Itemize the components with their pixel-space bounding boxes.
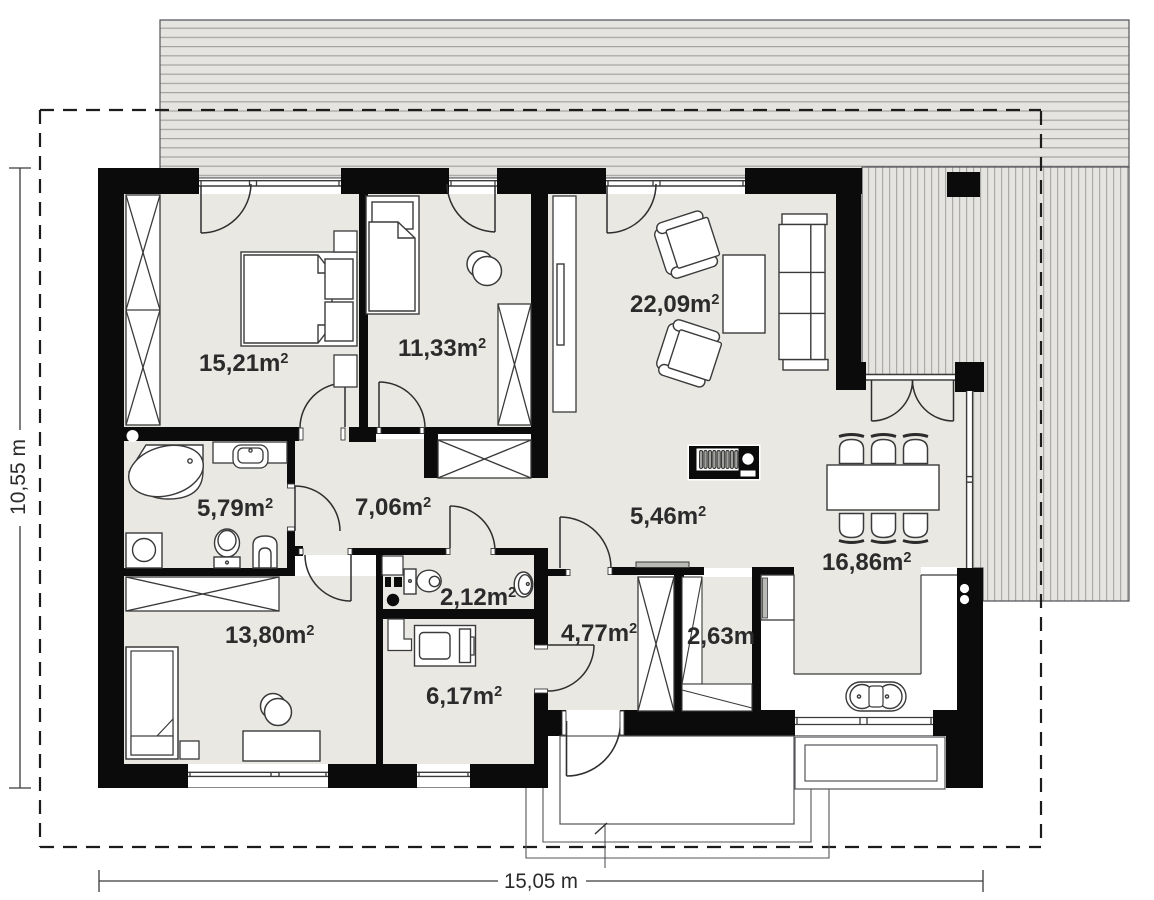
svg-text:2,63m: 2,63m	[687, 623, 755, 650]
svg-text:6,17m2: 6,17m2	[426, 683, 502, 710]
svg-text:4,77m2: 4,77m2	[561, 620, 637, 647]
svg-text:2,12m2: 2,12m2	[440, 584, 516, 611]
svg-text:13,80m2: 13,80m2	[225, 622, 314, 649]
svg-text:10,55 m: 10,55 m	[7, 439, 30, 515]
svg-text:16,86m2: 16,86m2	[822, 549, 911, 576]
svg-text:11,33m2: 11,33m2	[398, 335, 486, 362]
svg-text:15,05 m: 15,05 m	[504, 870, 578, 893]
svg-text:5,79m2: 5,79m2	[197, 495, 273, 522]
svg-text:22,09m2: 22,09m2	[630, 291, 719, 318]
svg-text:5,46m2: 5,46m2	[630, 503, 706, 530]
svg-text:7,06m2: 7,06m2	[355, 494, 431, 521]
svg-text:15,21m2: 15,21m2	[199, 350, 288, 377]
